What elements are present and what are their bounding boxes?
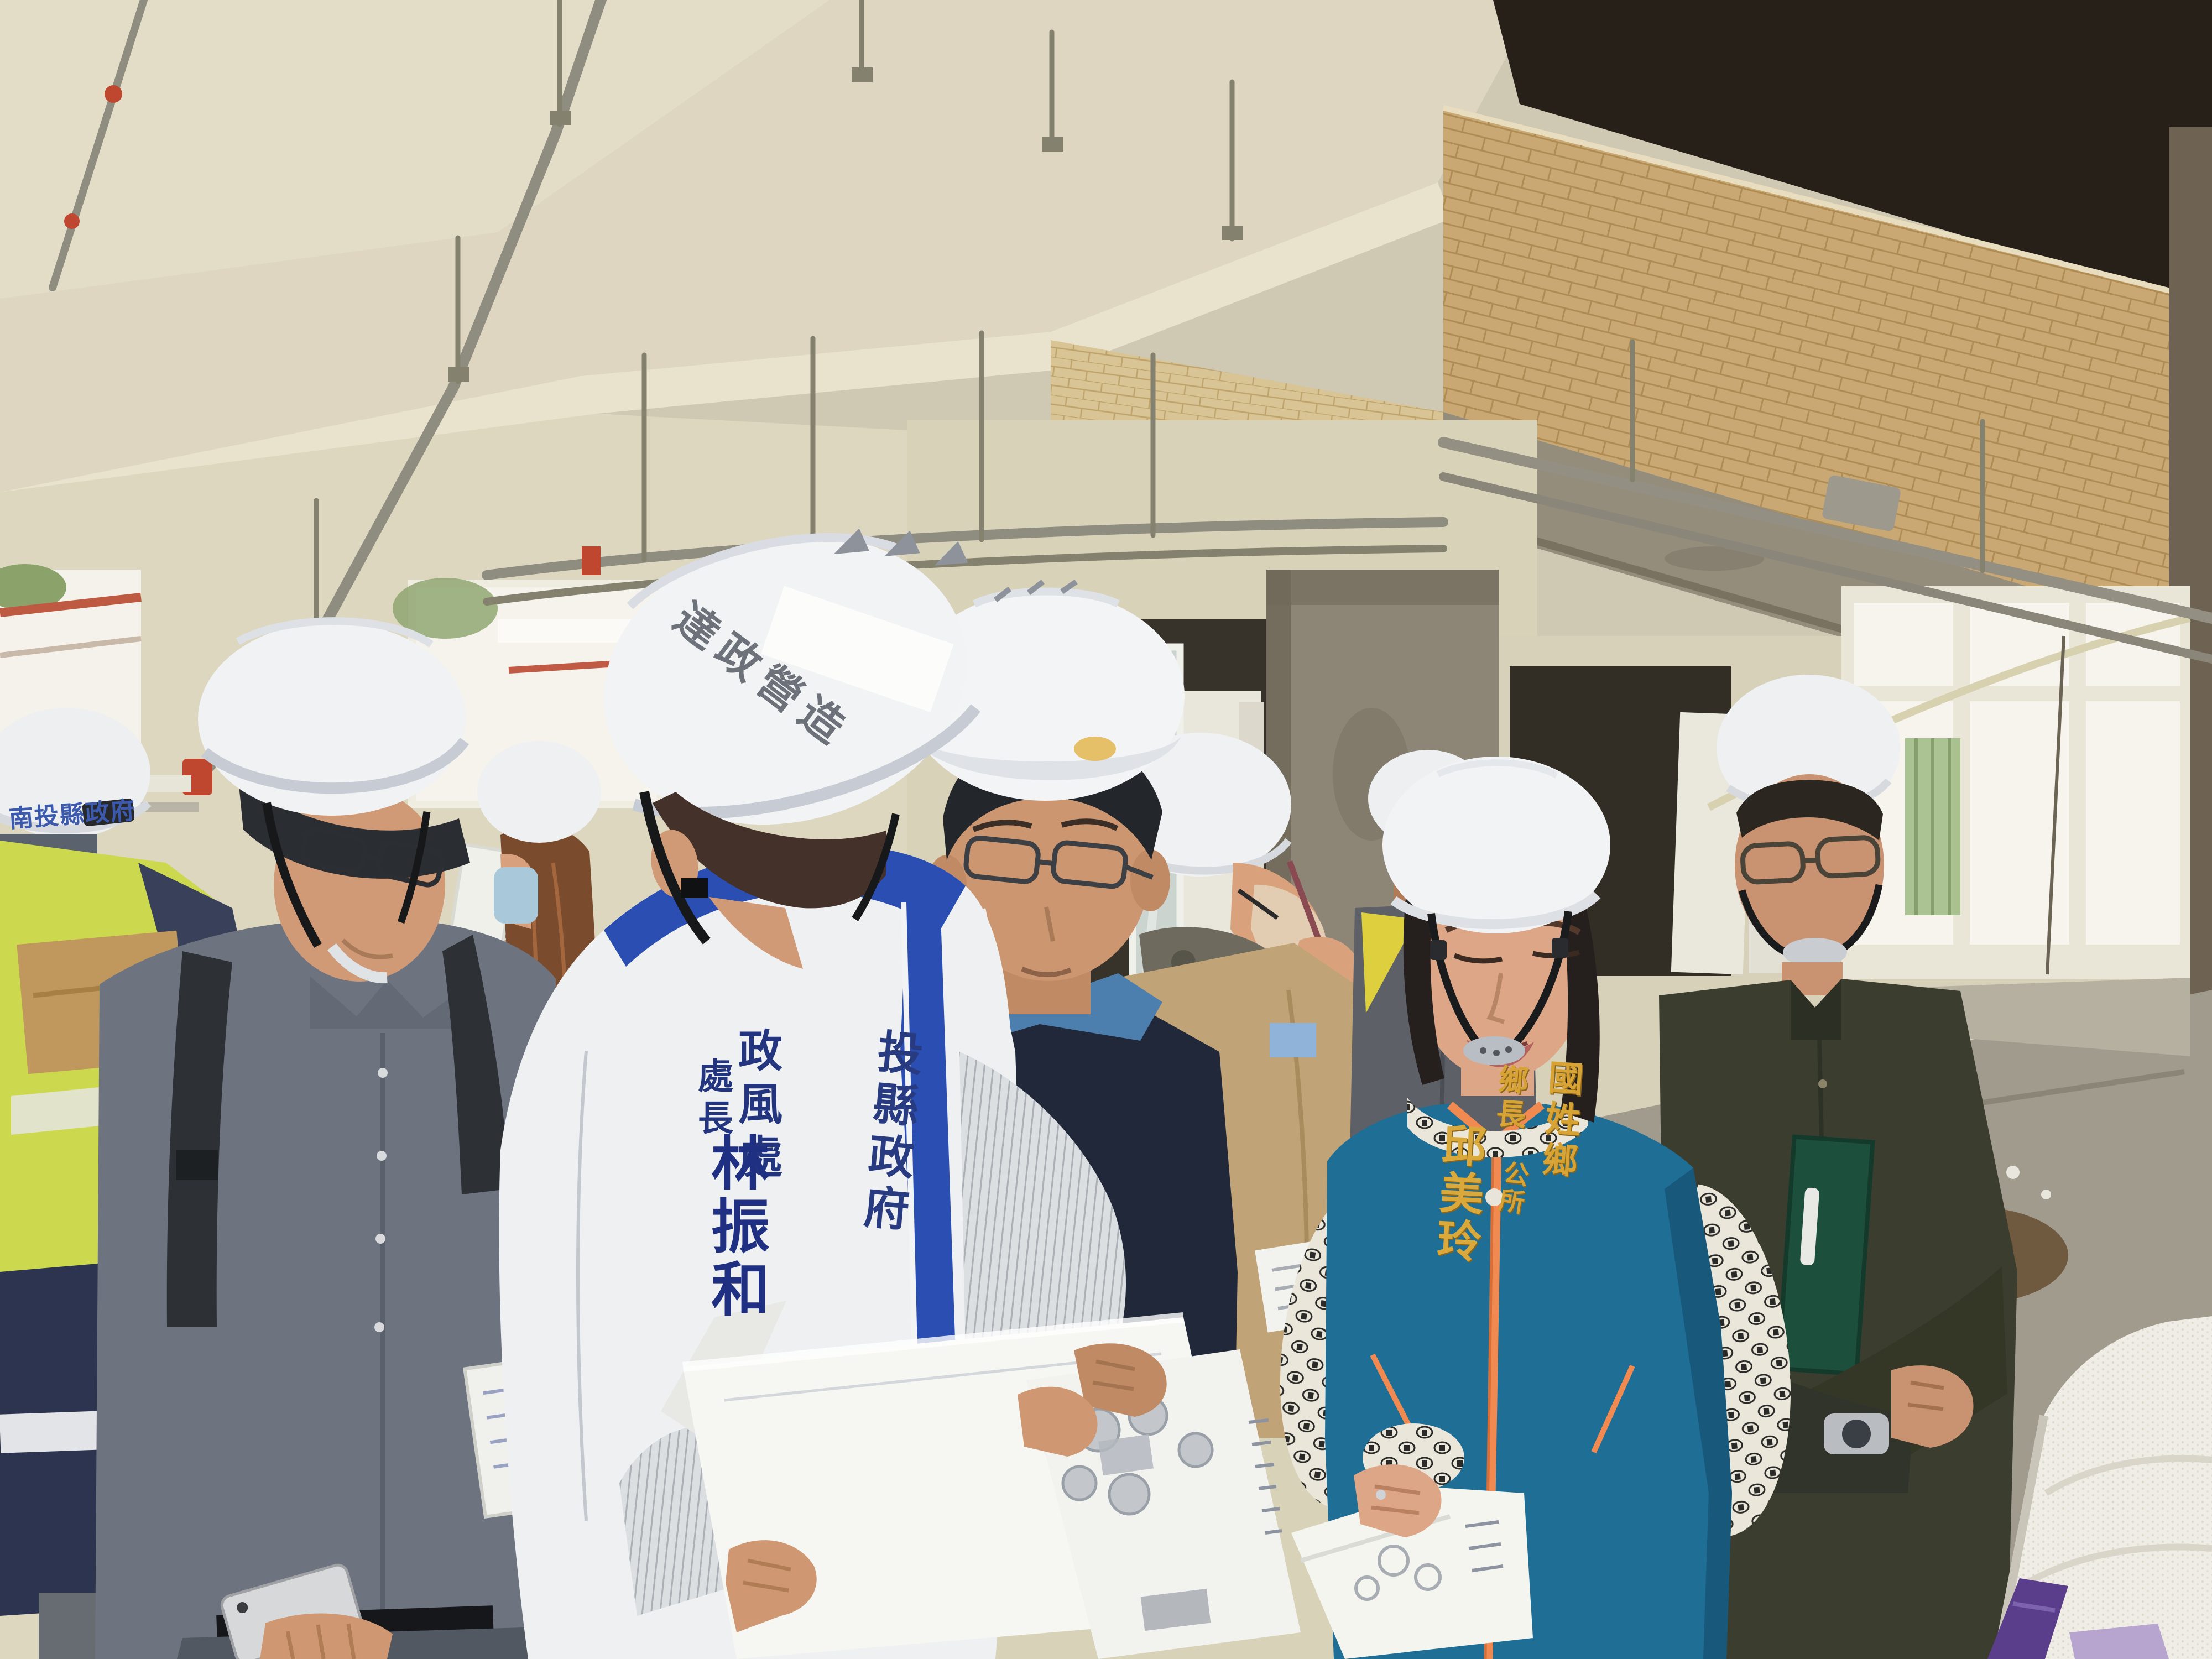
wristwatch [1824, 1413, 1889, 1454]
mayor-township-text: 國姓鄉 [1537, 1058, 1581, 1183]
mayor-name-text: 邱美玲 [1432, 1121, 1483, 1266]
mayor-office-text: 公所 [1495, 1159, 1529, 1217]
scene-illustration [0, 0, 2212, 1659]
vest-name-text: 林振和 [706, 1133, 764, 1322]
mayor-title-text: 鄉長 [1492, 1063, 1527, 1133]
green-folder [1778, 1137, 1873, 1374]
construction-inspection-photo: 達政營造 南投縣政府 政風處 處長 林振和 投縣政府 國姓鄉 鄉長 公所 邱美玲 [0, 0, 2212, 1659]
vest-title-text: 處長 [695, 1057, 730, 1141]
